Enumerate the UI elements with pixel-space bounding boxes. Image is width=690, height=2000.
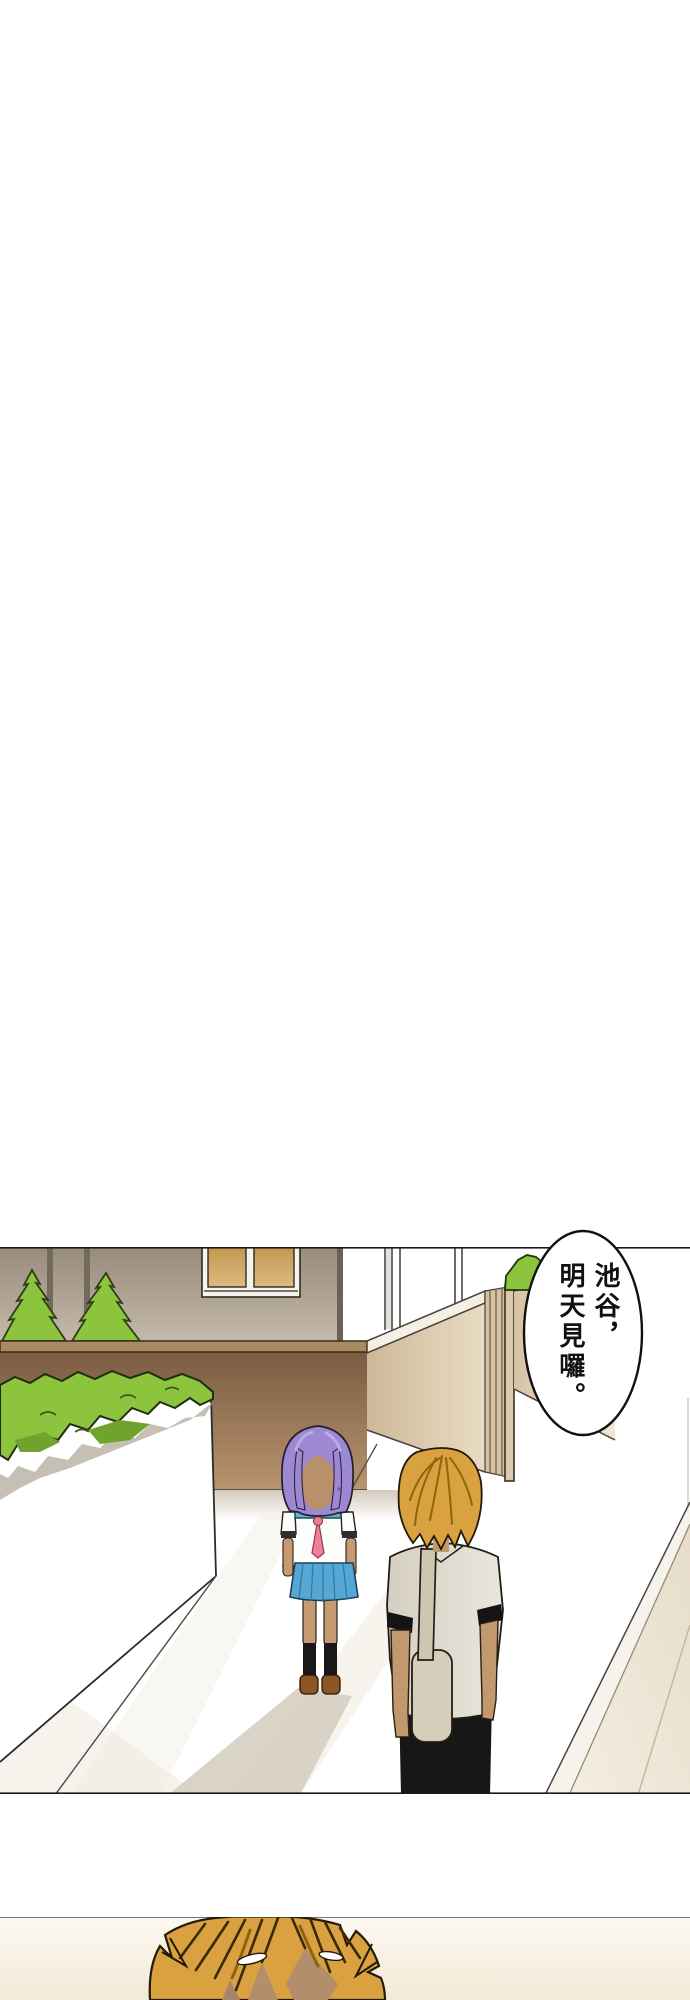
speech-bubble-text: 池谷， 明天見囉。: [546, 1262, 622, 1418]
comic-page: 池谷， 明天見囉。: [0, 0, 690, 2000]
girl-skirt: [290, 1563, 358, 1601]
girl-sock: [324, 1643, 337, 1676]
girl-sleeve-cuff: [281, 1531, 296, 1538]
pillar: [386, 1247, 391, 1329]
boy-bag-strap: [418, 1549, 436, 1660]
girl-leg: [303, 1594, 316, 1646]
boy-arm: [480, 1620, 498, 1720]
girl-sock: [303, 1643, 316, 1676]
window-pane: [254, 1247, 294, 1287]
comic-art: [0, 0, 690, 2000]
window: [202, 1247, 300, 1297]
brown-wall-cap: [0, 1341, 367, 1352]
girl-tie-knot: [314, 1517, 323, 1526]
distant-building: [0, 1247, 343, 1345]
girl-shoe: [322, 1675, 340, 1694]
building-corner-edge: [337, 1247, 343, 1345]
girl-leg: [324, 1594, 337, 1646]
fence-post: [505, 1285, 514, 1481]
girl-sleeve-cuff: [342, 1531, 357, 1538]
girl-earring: [337, 1487, 341, 1491]
speech-line-1: 池谷，: [587, 1262, 622, 1418]
girl-sleeve: [341, 1512, 356, 1534]
window-pane: [208, 1247, 246, 1287]
panel1-bottom-border: [0, 1792, 690, 1795]
panel2-top-border: [0, 1915, 690, 1918]
girl-sleeve: [281, 1512, 296, 1534]
girl-face: [301, 1456, 335, 1510]
boy-arm: [391, 1630, 410, 1737]
girl-shoe: [300, 1675, 318, 1694]
girl-arm: [283, 1538, 293, 1576]
speech-line-2: 明天見囉。: [552, 1262, 587, 1418]
panel-closeup: [0, 1915, 690, 2000]
boy-bag: [412, 1650, 452, 1742]
